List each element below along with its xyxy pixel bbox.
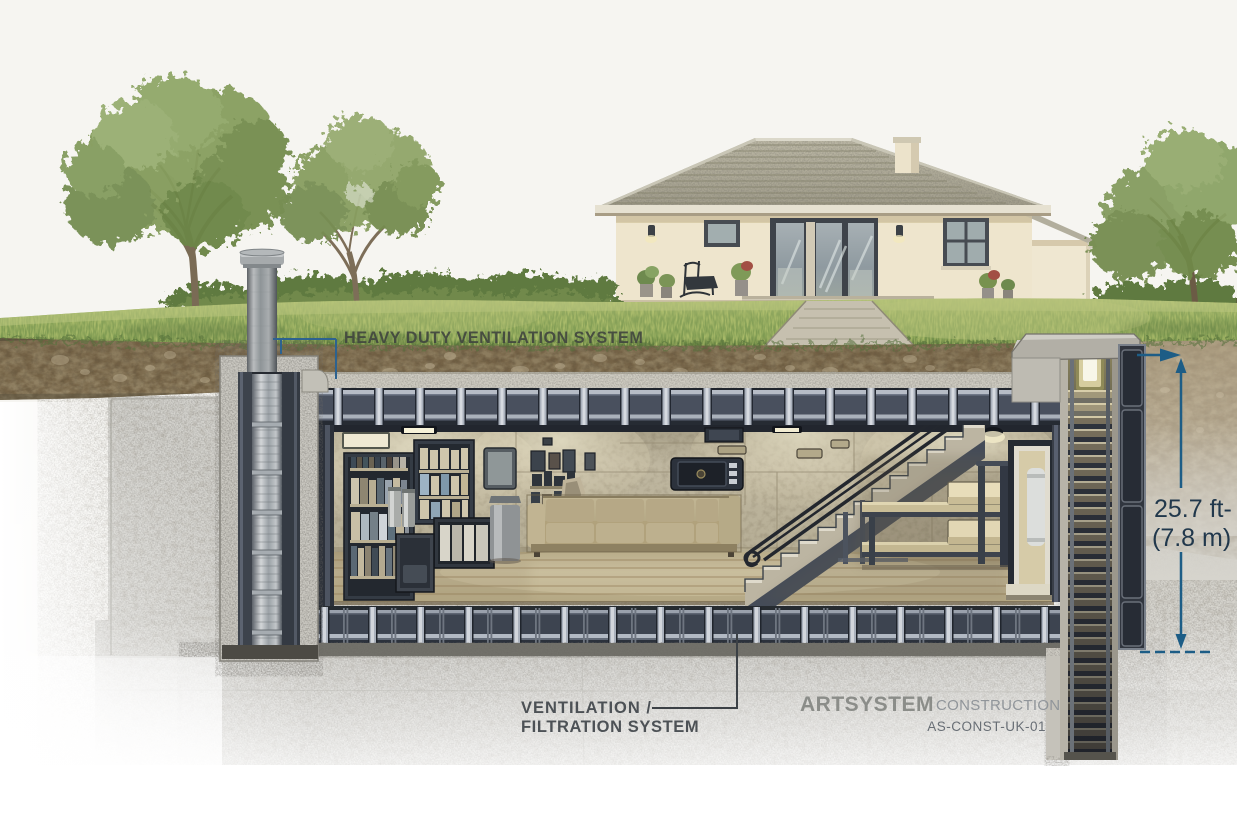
svg-text:(7.8 m): (7.8 m) bbox=[1152, 524, 1231, 552]
svg-text:FILTRATION SYSTEM: FILTRATION SYSTEM bbox=[521, 718, 699, 736]
svg-text:AS-CONST-UK-01: AS-CONST-UK-01 bbox=[927, 719, 1046, 734]
svg-text:HEAVY DUTY VENTILATION SYSTEM: HEAVY DUTY VENTILATION SYSTEM bbox=[344, 329, 643, 347]
svg-text:VENTILATION /: VENTILATION / bbox=[521, 699, 652, 717]
svg-text:25.7 ft-: 25.7 ft- bbox=[1154, 495, 1232, 523]
svg-text:CONSTRUCTION: CONSTRUCTION bbox=[936, 697, 1060, 714]
svg-text:ARTSYSTEM: ARTSYSTEM bbox=[800, 693, 934, 716]
